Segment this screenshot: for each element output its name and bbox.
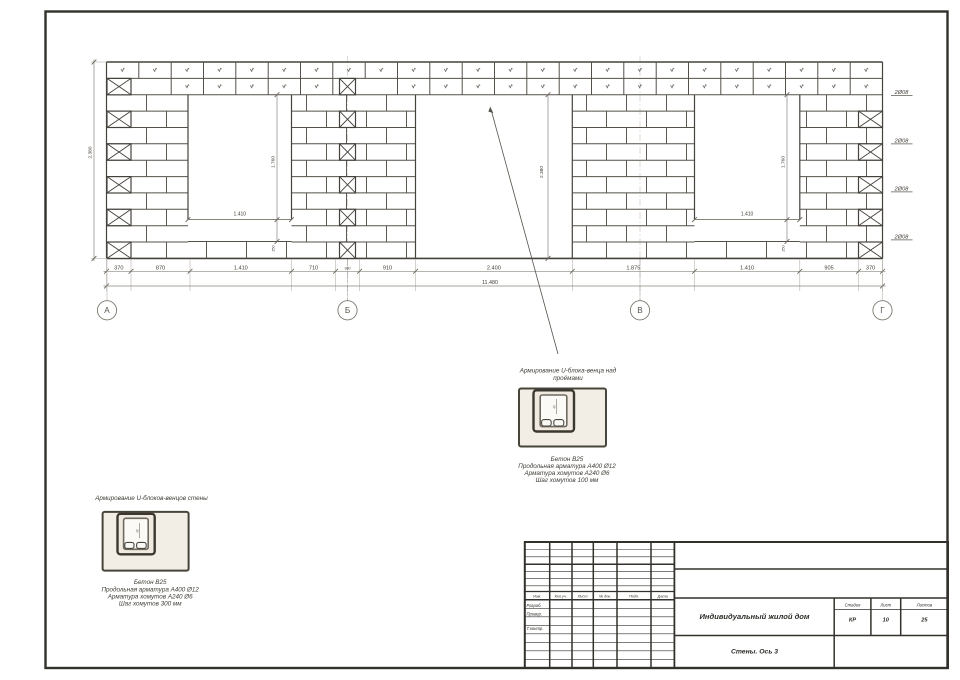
svg-text:11.480: 11.480 xyxy=(482,280,498,286)
svg-text:КР: КР xyxy=(849,618,856,624)
svg-text:1.760: 1.760 xyxy=(780,156,786,168)
svg-text:Армирование U-блока-венца над: Армирование U-блока-венца над xyxy=(519,367,617,375)
svg-text:2Ø08: 2Ø08 xyxy=(894,90,910,96)
svg-text:2.400: 2.400 xyxy=(487,265,501,271)
svg-text:№ док.: № док. xyxy=(599,594,611,598)
svg-text:Стены. Ось 3: Стены. Ось 3 xyxy=(731,649,778,656)
svg-text:370: 370 xyxy=(114,265,123,271)
svg-text:1.410: 1.410 xyxy=(740,265,754,271)
svg-text:870: 870 xyxy=(156,265,165,271)
svg-text:В: В xyxy=(637,306,643,315)
svg-text:Продольная арматура А400 Ø12: Продольная арматура А400 Ø12 xyxy=(518,462,616,470)
svg-text:710: 710 xyxy=(309,265,318,271)
svg-text:проёмами: проёмами xyxy=(553,375,583,382)
svg-text:250: 250 xyxy=(271,245,275,251)
svg-text:Подп.: Подп. xyxy=(629,594,639,598)
svg-text:Разраб.: Разраб. xyxy=(527,603,542,608)
svg-text:Стадия: Стадия xyxy=(845,603,861,608)
svg-text:Б: Б xyxy=(345,306,350,315)
svg-text:Лист: Лист xyxy=(577,594,588,598)
svg-text:1.410: 1.410 xyxy=(741,211,754,217)
svg-text:2Ø08: 2Ø08 xyxy=(894,138,910,144)
svg-text:Лист: Лист xyxy=(879,603,891,608)
svg-text:Продольная арматура А400 Ø12: Продольная арматура А400 Ø12 xyxy=(101,585,199,593)
svg-text:380: 380 xyxy=(345,266,351,270)
svg-text:Провер.: Провер. xyxy=(527,611,543,616)
svg-text:Шаг хомутов 100 мм: Шаг хомутов 100 мм xyxy=(536,477,599,484)
svg-text:Шаг хомутов 300 мм: Шаг хомутов 300 мм xyxy=(119,601,182,608)
svg-text:905: 905 xyxy=(824,265,833,271)
svg-text:2Ø08: 2Ø08 xyxy=(894,186,910,192)
svg-text:Листов: Листов xyxy=(916,603,933,608)
svg-text:Индивидуальный жилой дом: Индивидуальный жилой дом xyxy=(699,612,809,621)
svg-text:40: 40 xyxy=(553,405,557,409)
svg-text:Бетон В25: Бетон В25 xyxy=(551,456,584,463)
svg-text:Кол.уч.: Кол.уч. xyxy=(555,594,567,598)
svg-text:1.875: 1.875 xyxy=(626,265,640,271)
svg-text:Арматура хомутов А240 Ø6: Арматура хомутов А240 Ø6 xyxy=(107,594,193,601)
svg-text:А: А xyxy=(104,306,110,315)
svg-text:370: 370 xyxy=(866,265,875,271)
svg-text:Изм.: Изм. xyxy=(533,594,541,598)
svg-text:1.760: 1.760 xyxy=(270,156,276,168)
svg-text:Арматура хомутов А240 Ø6: Арматура хомутов А240 Ø6 xyxy=(523,470,609,477)
svg-text:1.410: 1.410 xyxy=(234,211,247,217)
svg-text:40: 40 xyxy=(136,529,140,533)
svg-text:Дата: Дата xyxy=(657,594,668,598)
svg-text:10: 10 xyxy=(883,618,890,624)
svg-text:Армирование U-блоков-венцов ст: Армирование U-блоков-венцов стены xyxy=(94,494,208,502)
svg-text:Бетон В25: Бетон В25 xyxy=(134,579,167,586)
svg-text:250: 250 xyxy=(781,245,785,251)
svg-text:25: 25 xyxy=(920,618,928,624)
svg-text:Т.контр.: Т.контр. xyxy=(527,626,544,631)
svg-text:Г: Г xyxy=(880,306,885,315)
svg-text:2.380: 2.380 xyxy=(87,146,93,158)
svg-text:2.380: 2.380 xyxy=(539,166,545,178)
svg-text:910: 910 xyxy=(383,265,392,271)
svg-text:1.410: 1.410 xyxy=(234,265,248,271)
svg-text:2Ø08: 2Ø08 xyxy=(894,234,910,240)
